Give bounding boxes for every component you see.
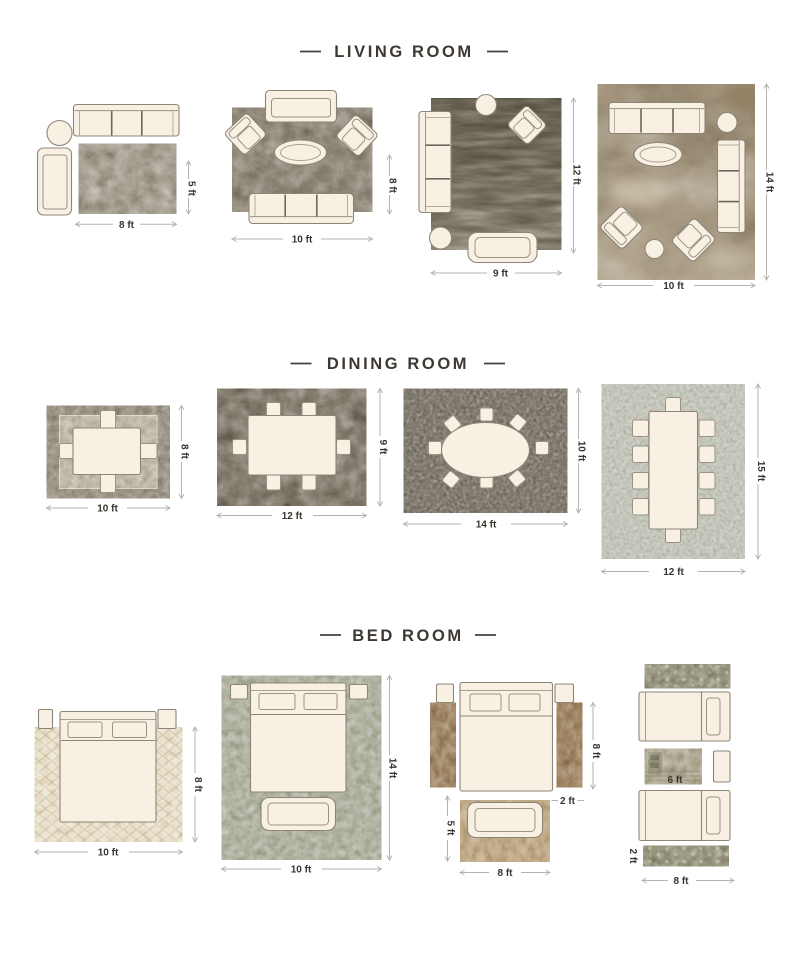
svg-text:8 ft: 8 ft [387, 178, 398, 194]
svg-text:BED ROOM: BED ROOM [352, 627, 464, 645]
svg-text:6 ft: 6 ft [668, 775, 684, 786]
svg-text:10 ft: 10 ft [663, 281, 684, 292]
svg-text:12 ft: 12 ft [282, 511, 303, 522]
svg-text:10 ft: 10 ft [291, 865, 312, 876]
svg-text:10 ft: 10 ft [576, 441, 587, 462]
svg-text:14 ft: 14 ft [764, 172, 775, 193]
svg-text:12 ft: 12 ft [663, 567, 684, 578]
svg-text:10 ft: 10 ft [97, 504, 118, 515]
svg-text:8 ft: 8 ft [192, 777, 203, 793]
svg-text:15 ft: 15 ft [755, 461, 766, 482]
svg-text:9 ft: 9 ft [377, 440, 388, 456]
svg-text:8 ft: 8 ft [498, 868, 514, 879]
svg-text:9 ft: 9 ft [493, 269, 509, 280]
svg-text:14 ft: 14 ft [387, 758, 398, 779]
svg-text:5 ft: 5 ft [445, 821, 456, 837]
svg-text:8 ft: 8 ft [674, 876, 690, 887]
svg-text:12 ft: 12 ft [571, 164, 582, 185]
svg-text:LIVING ROOM: LIVING ROOM [334, 43, 474, 61]
svg-text:DINING ROOM: DINING ROOM [327, 355, 469, 373]
svg-text:8 ft: 8 ft [119, 220, 135, 231]
svg-text:5 ft: 5 ft [186, 181, 197, 197]
svg-text:2 ft: 2 ft [627, 849, 638, 865]
svg-text:10 ft: 10 ft [292, 235, 313, 246]
svg-text:2 ft: 2 ft [560, 796, 576, 807]
svg-text:10 ft: 10 ft [98, 848, 119, 859]
svg-text:14 ft: 14 ft [476, 520, 497, 531]
svg-text:8 ft: 8 ft [179, 444, 190, 460]
svg-text:8 ft: 8 ft [590, 744, 601, 760]
